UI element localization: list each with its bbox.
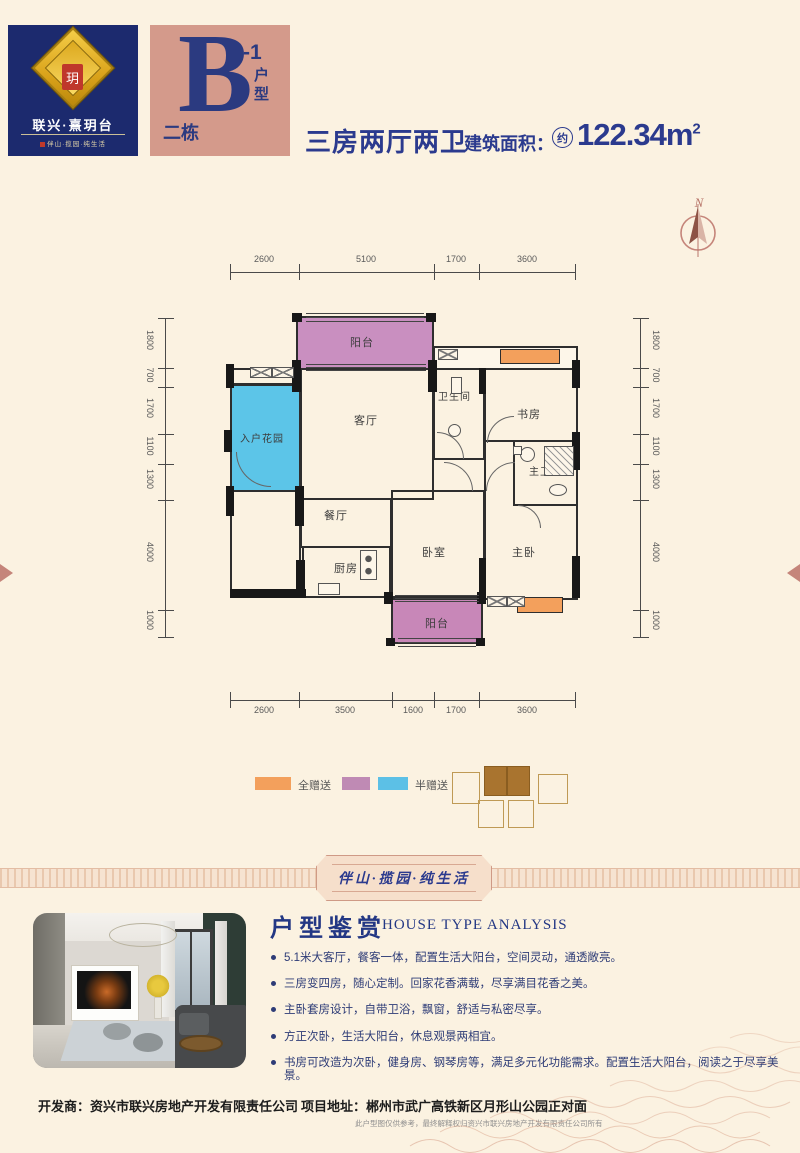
page-title: 三房两厅两卫 bbox=[305, 122, 467, 159]
room-label: 餐厅 bbox=[324, 507, 348, 523]
room-label: 阳台 bbox=[350, 334, 374, 350]
brand-tagline: 伴山·揽园·纯生活 bbox=[8, 138, 138, 148]
wall-segment bbox=[572, 556, 580, 598]
unit-letter: B bbox=[178, 13, 253, 136]
wall-segment bbox=[426, 313, 436, 322]
dim-label: 2600 bbox=[242, 705, 286, 715]
stove-icon bbox=[360, 550, 377, 580]
divider bbox=[21, 134, 125, 135]
analysis-title: 户型鉴赏 bbox=[270, 908, 386, 943]
room-label: 主卧 bbox=[512, 544, 536, 560]
legend-full-label: 全赠送 bbox=[298, 777, 331, 793]
brochure-page: 玥 联兴·熹玥台 伴山·揽园·纯生活 B -1 户型 二栋 三房两厅两卫 建筑面… bbox=[0, 0, 800, 1153]
door-arc bbox=[444, 462, 473, 491]
dim-label: 3600 bbox=[505, 705, 549, 715]
washbasin-icon bbox=[520, 447, 535, 462]
keyplan-unit-highlight bbox=[484, 766, 507, 796]
next-arrow[interactable] bbox=[787, 564, 800, 582]
chandelier bbox=[109, 923, 177, 947]
dim-label: 3500 bbox=[323, 705, 367, 715]
sink-icon bbox=[318, 583, 340, 595]
keyplan-unit bbox=[478, 800, 504, 828]
dim-label: 5100 bbox=[344, 254, 388, 264]
dim-label: 1700 bbox=[434, 705, 478, 715]
window bbox=[306, 313, 424, 322]
room-label: 入户花园 bbox=[240, 430, 284, 445]
red-square-icon bbox=[40, 142, 45, 147]
dim-line-bottom bbox=[230, 700, 575, 701]
washbasin-icon bbox=[448, 424, 461, 437]
stool bbox=[103, 1023, 131, 1040]
dim-label: 1300 bbox=[145, 457, 155, 501]
room-dining bbox=[300, 498, 392, 548]
analysis-bullet: 三房变四房，随心定制。回家花香满载，尽享满目花香之美。 bbox=[284, 978, 794, 991]
wall-segment bbox=[479, 368, 486, 394]
keyplan-unit-highlight bbox=[507, 766, 530, 796]
tv-screen bbox=[77, 971, 131, 1009]
window-icon bbox=[272, 367, 294, 378]
shower-icon bbox=[544, 446, 574, 476]
flowers bbox=[145, 973, 171, 999]
approx-badge: 约 bbox=[552, 127, 573, 148]
dim-line-left bbox=[165, 318, 166, 637]
sofa-cushion bbox=[179, 1013, 209, 1035]
developer-label: 开发商： bbox=[38, 1099, 90, 1114]
dim-label: 2600 bbox=[242, 254, 286, 264]
slogan-text: 伴山·揽园·纯生活 bbox=[332, 864, 476, 892]
room-living bbox=[300, 368, 434, 500]
wall-segment bbox=[295, 486, 304, 526]
dim-line-right bbox=[640, 318, 641, 637]
legend-swatch-half-pink bbox=[342, 777, 370, 790]
room-label: 阳台 bbox=[425, 615, 449, 631]
bullet-dot-icon bbox=[271, 981, 276, 986]
developer-line: 开发商：资兴市联兴房地产开发有限责任公司 bbox=[38, 1096, 298, 1115]
cabinet-icon bbox=[513, 446, 522, 455]
wall-segment bbox=[476, 638, 485, 646]
room-label: 书房 bbox=[517, 406, 541, 422]
keyplan-unit bbox=[508, 800, 534, 828]
area-label: 建筑面积： bbox=[464, 130, 554, 156]
analysis-bullet: 5.1米大客厅，餐客一体，配置生活大阳台，空间灵动，通透敞亮。 bbox=[284, 952, 794, 965]
sliding-door bbox=[395, 595, 479, 602]
window-icon bbox=[250, 367, 272, 378]
stool bbox=[133, 1033, 163, 1052]
window-icon bbox=[487, 596, 507, 607]
dim-label: 1700 bbox=[434, 254, 478, 264]
bullet-dot-icon bbox=[271, 1007, 276, 1012]
analysis-subtitle: HOUSE TYPE ANALYSIS bbox=[382, 917, 568, 934]
vase bbox=[154, 997, 162, 1019]
dim-line-top bbox=[230, 272, 575, 273]
analysis-bullet: 主卧套房设计，自带卫浴，飘窗，舒适与私密尽享。 bbox=[284, 1004, 794, 1017]
wall-segment bbox=[292, 313, 302, 322]
entry-hall bbox=[230, 490, 301, 596]
developer-value: 资兴市联兴房地产开发有限责任公司 bbox=[90, 1099, 298, 1114]
toilet-cistern-icon bbox=[451, 377, 462, 394]
interior-photo bbox=[33, 913, 246, 1068]
keyplan-unit bbox=[452, 772, 480, 804]
window bbox=[171, 929, 213, 1013]
dim-label: 4000 bbox=[145, 530, 155, 574]
wall-segment bbox=[224, 430, 232, 452]
brand-logo: 玥 联兴·熹玥台 伴山·揽园·纯生活 bbox=[8, 25, 138, 156]
address-label: 项目地址： bbox=[301, 1099, 366, 1114]
dim-label: 1000 bbox=[145, 598, 155, 642]
brand-name: 联兴·熹玥台 bbox=[8, 115, 138, 134]
wall-segment bbox=[386, 638, 395, 646]
legend-swatch-full bbox=[255, 777, 291, 790]
legend-half-label: 半赠送 bbox=[415, 777, 448, 793]
unit-suffix: -1 bbox=[243, 41, 262, 65]
coffee-table bbox=[179, 1035, 223, 1052]
window-icon bbox=[438, 349, 458, 360]
room-label: 卧室 bbox=[422, 544, 446, 560]
bay-window-top bbox=[500, 349, 560, 364]
wall-segment bbox=[384, 592, 393, 604]
wall-segment bbox=[428, 360, 437, 392]
room-label: 客厅 bbox=[354, 412, 378, 428]
svg-text:N: N bbox=[694, 195, 705, 210]
window bbox=[398, 638, 476, 647]
bullet-dot-icon bbox=[271, 955, 276, 960]
unit-badge: B -1 户型 二栋 bbox=[150, 25, 290, 156]
compass-icon: N bbox=[672, 194, 728, 260]
slogan-plaque: 伴山·揽园·纯生活 bbox=[316, 855, 492, 901]
area-value: 122.34m2 bbox=[577, 117, 700, 153]
dim-label: 1600 bbox=[391, 705, 435, 715]
bullet-dot-icon bbox=[271, 1060, 276, 1065]
wall-segment bbox=[572, 360, 580, 388]
room-label: 厨房 bbox=[334, 560, 358, 576]
wall-segment bbox=[296, 560, 305, 596]
wall-segment bbox=[226, 364, 234, 388]
building-label: 二栋 bbox=[163, 119, 199, 145]
sliding-door bbox=[306, 364, 426, 371]
dim-label: 4000 bbox=[651, 530, 661, 574]
dim-label: 1000 bbox=[651, 598, 661, 642]
wave-decoration bbox=[400, 1028, 800, 1153]
legend-swatch-half-blue bbox=[378, 777, 408, 790]
bullet-dot-icon bbox=[271, 1034, 276, 1039]
wall-segment bbox=[230, 589, 306, 598]
toilet-icon bbox=[549, 484, 567, 496]
emblem-seal: 玥 bbox=[62, 64, 83, 90]
wall-segment bbox=[226, 486, 234, 516]
window-icon bbox=[507, 596, 525, 607]
keyplan-unit bbox=[538, 774, 568, 804]
dim-label: 1300 bbox=[651, 457, 661, 501]
curtain bbox=[215, 921, 227, 1017]
prev-arrow[interactable] bbox=[0, 564, 13, 582]
dim-label: 3600 bbox=[505, 254, 549, 264]
unit-type-label: 户型 bbox=[250, 67, 271, 105]
